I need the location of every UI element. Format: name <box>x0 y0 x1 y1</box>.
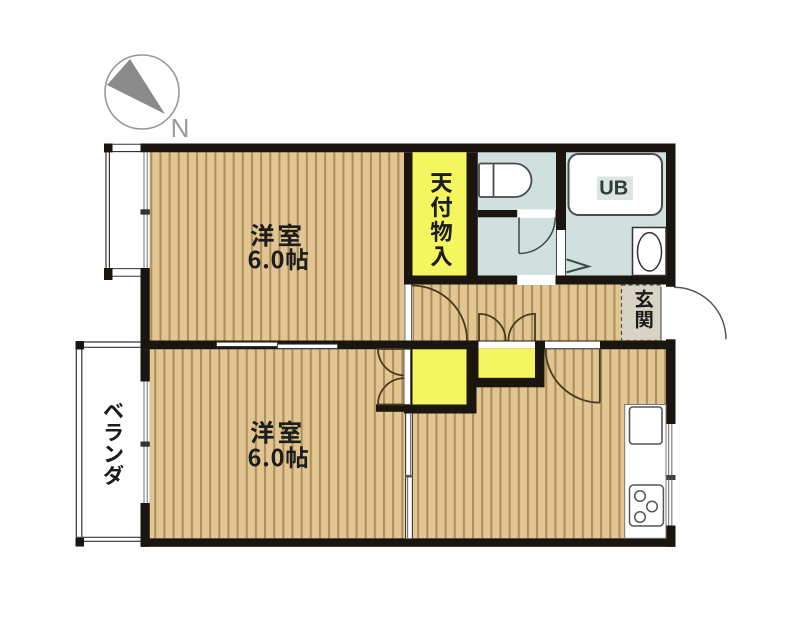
svg-text:UB: UB <box>599 177 628 199</box>
svg-text:N: N <box>171 113 190 143</box>
